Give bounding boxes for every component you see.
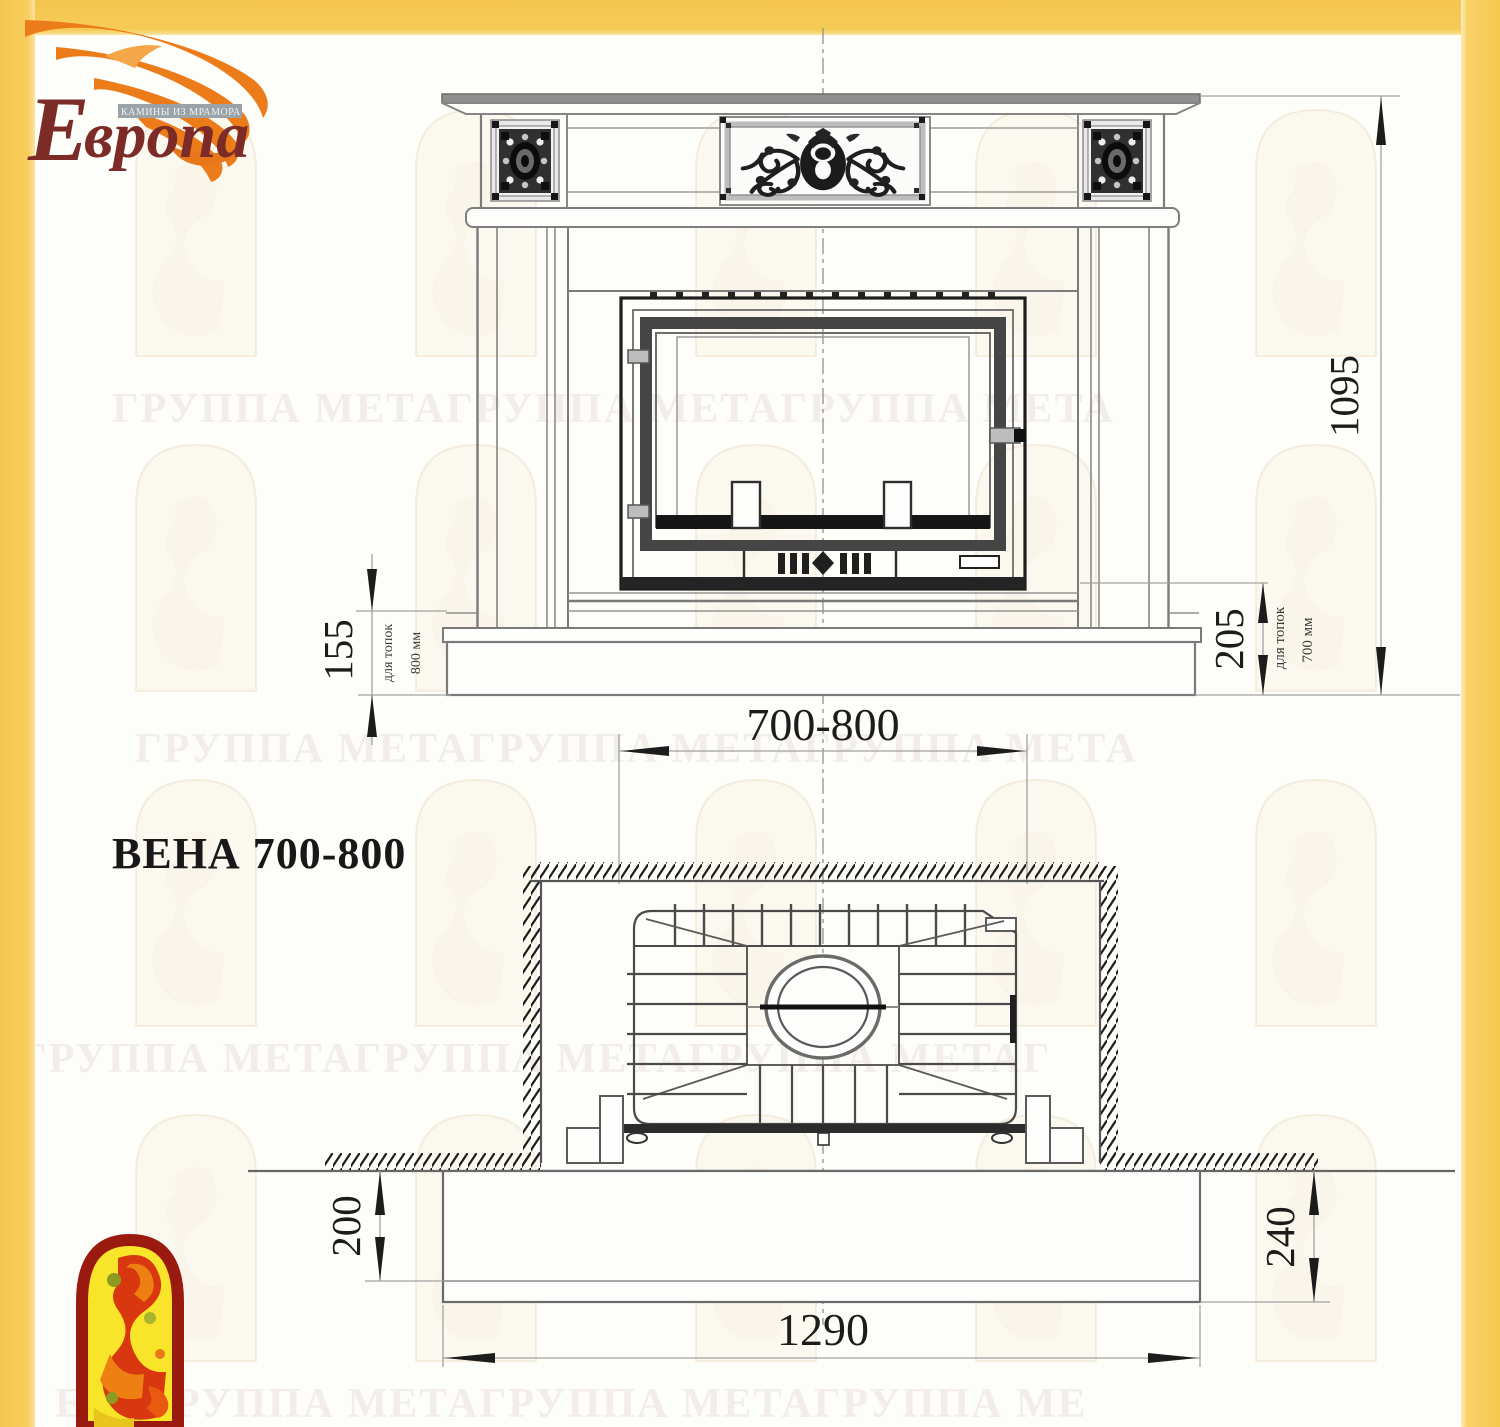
svg-text:КАМИНЫ ИЗ МРАМОРА: КАМИНЫ ИЗ МРАМОРА [121, 107, 241, 118]
svg-text:ГРУППА МЕТАГРУППА МЕТАГРУППА М: ГРУППА МЕТАГРУППА МЕТАГРУППА МЕТА [112, 386, 1115, 432]
svg-text:Е: Е [27, 78, 89, 180]
svg-text:155: 155 [315, 619, 361, 681]
svg-text:200: 200 [323, 1195, 369, 1257]
svg-text:ВЕНА 700-800: ВЕНА 700-800 [112, 829, 406, 878]
svg-text:для топок: для топок [381, 624, 396, 682]
svg-text:для топок: для топок [1272, 606, 1288, 669]
svg-text:ЕТАГРУППА МЕТАГРУППА МЕТАГРУПП: ЕТАГРУППА МЕТАГРУППА МЕТАГРУППА МЕ [55, 1381, 1088, 1427]
svg-text:1290: 1290 [777, 1304, 869, 1355]
svg-text:700-800: 700-800 [746, 699, 899, 750]
svg-text:1095: 1095 [1321, 355, 1367, 437]
svg-text:800 мм: 800 мм [409, 632, 424, 674]
svg-text:240: 240 [1257, 1206, 1303, 1268]
svg-text:700 мм: 700 мм [1300, 617, 1316, 663]
svg-text:205: 205 [1206, 608, 1252, 670]
